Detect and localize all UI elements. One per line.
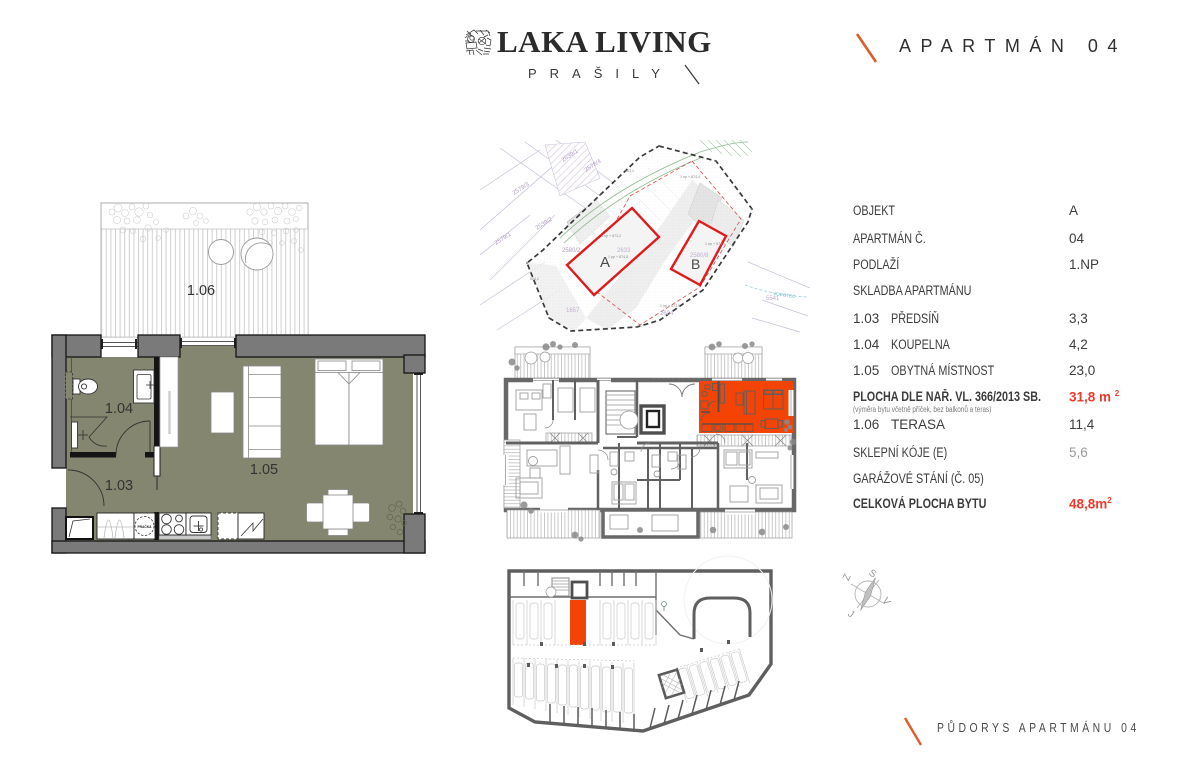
svg-text:5541: 5541 bbox=[766, 296, 780, 302]
svg-text:1.05: 1.05 bbox=[250, 462, 278, 478]
svg-text:864,2: 864,2 bbox=[530, 277, 539, 281]
svg-text:Z: Z bbox=[841, 572, 854, 582]
svg-text:1.03: 1.03 bbox=[105, 478, 133, 494]
svg-text:1.06: 1.06 bbox=[187, 283, 215, 299]
svg-text:1 np + 873,2: 1 np + 873,2 bbox=[601, 234, 621, 238]
svg-text:1.04: 1.04 bbox=[105, 401, 133, 417]
svg-text:J: J bbox=[845, 609, 855, 621]
svg-text:PRAČKA: PRAČKA bbox=[137, 524, 152, 529]
svg-text:V: V bbox=[879, 596, 892, 608]
svg-text:2580/2: 2580/2 bbox=[562, 248, 581, 254]
svg-text:1 np + 873,9: 1 np + 873,9 bbox=[660, 304, 680, 308]
svg-text:2579/3: 2579/3 bbox=[512, 181, 531, 196]
svg-text:1 np + 874,4: 1 np + 874,4 bbox=[680, 175, 700, 179]
svg-text:2639/2: 2639/2 bbox=[535, 216, 554, 231]
svg-text:863,1: 863,1 bbox=[625, 169, 634, 173]
svg-text:1 pp + 874,5: 1 pp + 874,5 bbox=[608, 255, 628, 259]
svg-text:2579/1: 2579/1 bbox=[494, 231, 513, 246]
svg-text:1 np + 874,1: 1 np + 874,1 bbox=[705, 242, 725, 246]
svg-text:2580/8: 2580/8 bbox=[690, 253, 709, 259]
svg-text:2633: 2633 bbox=[617, 248, 631, 254]
svg-text:2634: 2634 bbox=[660, 311, 674, 317]
svg-text:S: S bbox=[866, 568, 878, 581]
svg-text:1657: 1657 bbox=[566, 308, 580, 314]
